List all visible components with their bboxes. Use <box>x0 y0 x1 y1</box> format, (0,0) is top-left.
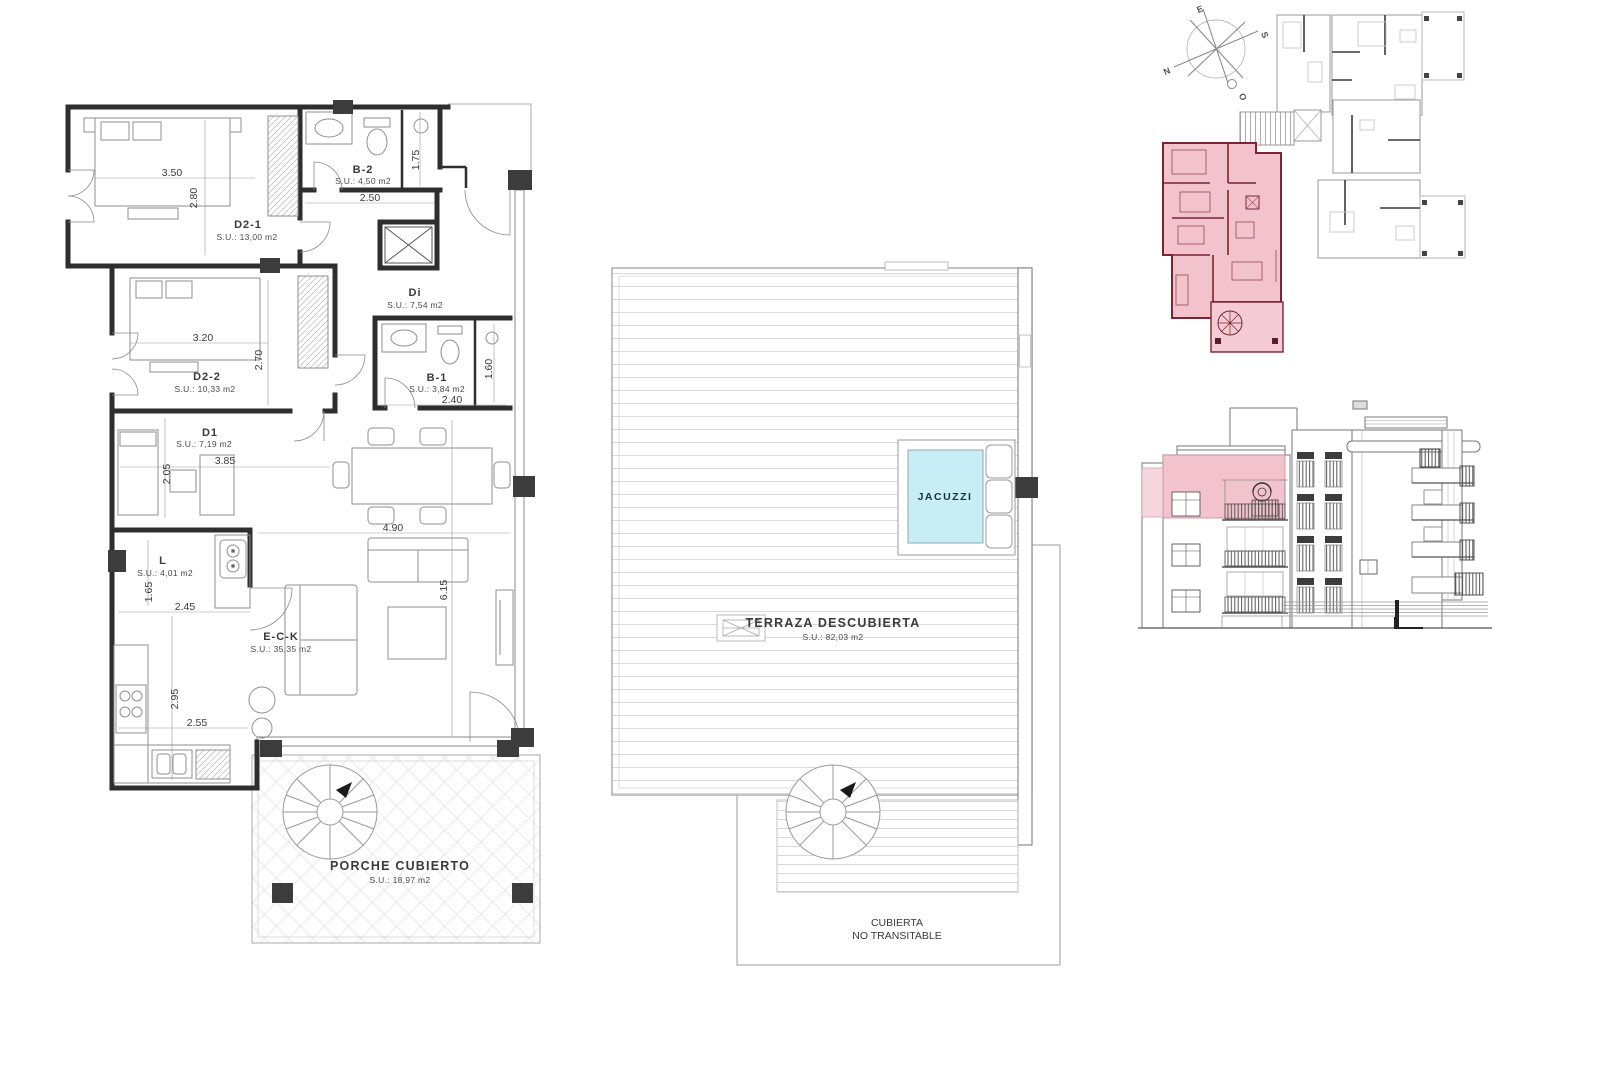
blueprint-drawing: D2-1 S.U.: 13,00 m2 3.50 2.80 B-2 S.U.: … <box>0 0 1597 1080</box>
room-porche-area: S.U.: 18,97 m2 <box>370 875 431 885</box>
terrace-plan: JACUZZI TERRAZA DESCUBIERTA S.U.: 82,03 … <box>612 262 1060 965</box>
dim-d1-h: 2.05 <box>161 464 173 485</box>
jacuzzi-label: JACUZZI <box>918 491 973 503</box>
terrace-right-wall <box>1014 268 1060 965</box>
dim-d22-w: 3.20 <box>193 332 214 344</box>
room-l-name: L <box>159 555 167 567</box>
building-elevation <box>1138 401 1492 628</box>
room-d1-area: S.U.: 7,19 m2 <box>176 439 232 449</box>
room-d21-area: S.U.: 13,00 m2 <box>217 232 278 242</box>
room-porche-name: PORCHE CUBIERTO <box>330 859 470 873</box>
terraza-name: TERRAZA DESCUBIERTA <box>746 616 921 630</box>
compass-s: S <box>1259 30 1271 39</box>
room-d22-name: D2-2 <box>193 371 221 383</box>
elevation-middle-tower <box>1292 430 1352 628</box>
room-eck-name: E-C-K <box>263 631 299 643</box>
compass-o: O <box>1237 92 1249 102</box>
cubierta-line2: NO TRANSITABLE <box>852 930 941 942</box>
dim-kitchen-w: 2.55 <box>187 717 208 729</box>
dim-eck-w: 4.90 <box>383 522 404 534</box>
elevator-shaft <box>385 227 432 263</box>
furniture <box>84 112 513 783</box>
cubierta-line1: CUBIERTA <box>871 917 923 929</box>
dim-d21-h: 2.80 <box>188 188 200 209</box>
dim-b1-w: 2.40 <box>442 394 463 406</box>
room-b2-area: S.U.: 4,50 m2 <box>335 176 391 186</box>
room-di-area: S.U.: 7,54 m2 <box>387 300 443 310</box>
dim-d21-w: 3.50 <box>162 167 183 179</box>
dim-b2-h: 1.75 <box>410 150 422 171</box>
room-l-area: S.U.: 4,01 m2 <box>137 568 193 578</box>
dim-d22-h: 2.70 <box>253 350 265 371</box>
dim-kitchen-h: 2.95 <box>169 689 181 710</box>
dim-b1-h: 1.60 <box>483 359 495 380</box>
room-d21-name: D2-1 <box>234 219 262 231</box>
site-spiral-stair <box>1218 311 1242 335</box>
dim-d1-w: 3.85 <box>215 455 236 467</box>
main-floor-plan: D2-1 S.U.: 13,00 m2 3.50 2.80 B-2 S.U.: … <box>68 100 540 943</box>
terraza-area: S.U.: 82,03 m2 <box>803 632 864 642</box>
dim-l-w: 2.45 <box>175 601 196 613</box>
dim-l-h: 1.65 <box>143 582 155 603</box>
room-di-name: Di <box>409 287 422 299</box>
compass-icon: E S N O <box>1162 3 1271 102</box>
spiral-stair-terrace <box>786 765 880 859</box>
compass-n: N <box>1162 65 1172 77</box>
site-highlighted-unit <box>1163 143 1283 352</box>
dim-b2-w: 2.50 <box>360 192 381 204</box>
blueprint-sheet: D2-1 S.U.: 13,00 m2 3.50 2.80 B-2 S.U.: … <box>0 0 1597 1080</box>
site-plan: E S N O <box>1162 3 1465 352</box>
room-d22-area: S.U.: 10,33 m2 <box>175 384 236 394</box>
jacuzzi: JACUZZI <box>898 440 1015 555</box>
spiral-stair-porch <box>283 765 377 859</box>
elevation-highlight-wing <box>1142 468 1163 517</box>
room-d1-name: D1 <box>202 427 218 439</box>
room-eck-area: S.U.: 35,35 m2 <box>251 644 312 654</box>
room-b2-name: B-2 <box>353 164 374 176</box>
room-b1-area: S.U.: 3,84 m2 <box>409 384 465 394</box>
dim-eck-h: 6.15 <box>438 580 450 601</box>
room-b1-name: B-1 <box>427 372 448 384</box>
